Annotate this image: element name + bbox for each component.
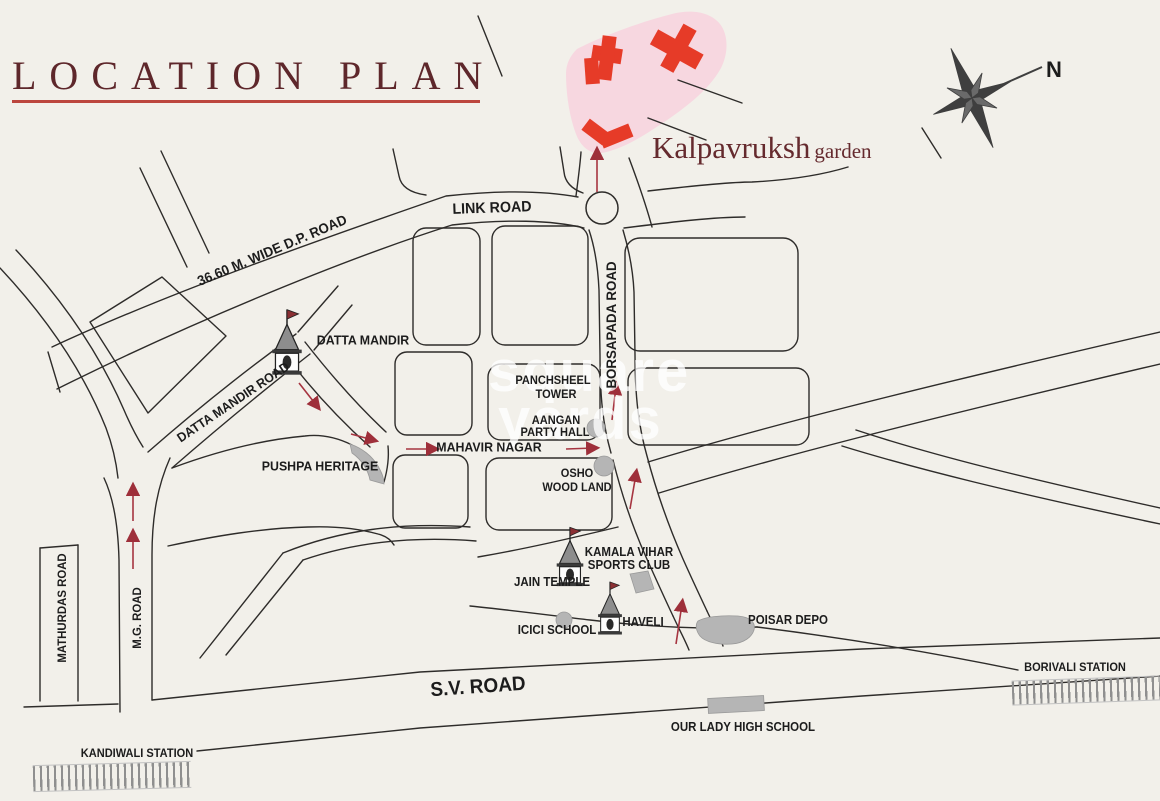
label-osho-wood-land-2: WOOD LAND — [542, 481, 611, 493]
osho-wood-land-building — [594, 456, 614, 476]
label-our-lady-high-school: OUR LADY HIGH SCHOOL — [671, 721, 815, 734]
poisar-depo-building — [696, 616, 754, 644]
title-underline — [12, 100, 480, 103]
our-lady-building — [708, 696, 765, 714]
label-kamala-vihar-1: KAMALA VIHAR — [585, 546, 673, 559]
label-kamala-vihar-2: SPORTS CLUB — [588, 559, 670, 572]
label-jain-temple: JAIN TEMPLE — [514, 576, 590, 589]
site-name-suffix: garden — [814, 139, 871, 163]
temple-icon-haveli — [598, 582, 622, 635]
label-datta-mandir: DATTA MANDIR — [317, 334, 409, 347]
roundabout — [586, 192, 618, 224]
label-icici-school: ICICI SCHOOL — [518, 624, 597, 637]
label-panchsheel-tower-1: PANCHSHEEL — [515, 374, 590, 386]
label-borivali-station: BORIVALI STATION — [1024, 661, 1126, 673]
label-link-road: LINK ROAD — [452, 199, 532, 217]
page-title: LOCATION PLAN — [12, 52, 495, 99]
railway-kandiwali — [33, 761, 192, 792]
label-mahavir-nagar: MAHAVIR NAGAR — [436, 441, 541, 454]
label-panchsheel-tower-2: TOWER — [536, 388, 577, 400]
label-aangan-party-hall-2: PARTY HALL — [521, 426, 590, 438]
label-pushpa-heritage: PUSHPA HERITAGE — [262, 460, 378, 473]
label-haveli: HAVELI — [622, 616, 663, 629]
location-plan-map: LOCATION PLAN Kalpavruksh garden square … — [0, 0, 1160, 801]
label-borsapada-road: BORSAPADA ROAD — [604, 261, 618, 388]
label-kandiwali-station: KANDIWALI STATION — [81, 747, 193, 759]
railway-borivali — [1012, 675, 1160, 705]
label-mg-road: M.G. ROAD — [131, 587, 143, 648]
kamala-vihar-building — [630, 571, 654, 593]
site-label: Kalpavruksh garden — [652, 130, 872, 166]
compass-north-label: N — [1046, 59, 1062, 81]
label-poisar-depo: POISAR DEPO — [748, 614, 828, 627]
label-osho-wood-land-1: OSHO — [561, 467, 594, 479]
site-name: Kalpavruksh — [652, 130, 810, 165]
label-mathurdas-road: MATHURDAS ROAD — [56, 553, 68, 662]
